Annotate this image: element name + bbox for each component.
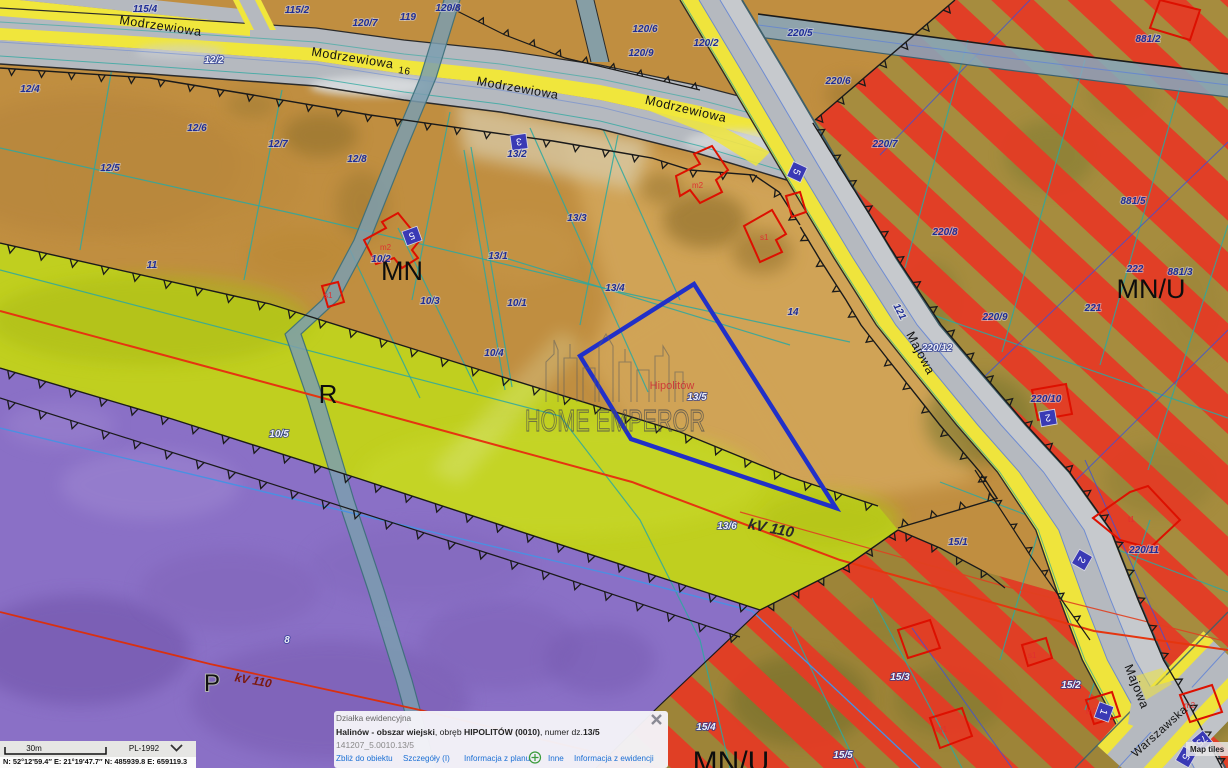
svg-text:115/2: 115/2 — [285, 5, 310, 16]
svg-text:141207_5.0010.13/5: 141207_5.0010.13/5 — [336, 740, 414, 750]
svg-text:220/11: 220/11 — [1128, 545, 1159, 556]
svg-text:10/1: 10/1 — [507, 298, 527, 309]
svg-text:220/6: 220/6 — [824, 76, 850, 87]
svg-text:s1: s1 — [1028, 651, 1037, 660]
svg-text:10/3: 10/3 — [420, 296, 440, 307]
svg-text:30m: 30m — [26, 744, 42, 753]
svg-text:m2: m2 — [380, 243, 392, 252]
svg-text:10/4: 10/4 — [484, 348, 504, 359]
svg-text:15/1: 15/1 — [948, 537, 968, 548]
svg-text:221: 221 — [1084, 303, 1102, 314]
svg-text:881/2: 881/2 — [1135, 34, 1160, 45]
svg-text:N: 52°12'59.4″ E: 21°19'47.7″: N: 52°12'59.4″ E: 21°19'47.7″ N: 485939.… — [3, 757, 187, 766]
svg-text:220/10: 220/10 — [1030, 394, 1062, 405]
svg-text:15/3: 15/3 — [890, 672, 910, 683]
svg-text:120/6: 120/6 — [632, 24, 657, 35]
svg-text:13/3: 13/3 — [567, 213, 587, 224]
svg-text:220/8: 220/8 — [931, 227, 957, 238]
svg-text:13/2: 13/2 — [507, 149, 527, 160]
svg-text:13/5: 13/5 — [687, 392, 707, 403]
svg-text:15/5: 15/5 — [833, 750, 853, 761]
svg-text:Map tiles: Map tiles — [1190, 745, 1225, 754]
svg-text:HOME EMPEROR: HOME EMPEROR — [525, 403, 705, 438]
svg-text:120/9: 120/9 — [628, 48, 653, 59]
svg-text:Informacja z planu: Informacja z planu — [464, 754, 530, 763]
svg-text:Działka ewidencyjna: Działka ewidencyjna — [336, 713, 412, 723]
svg-text:13/4: 13/4 — [605, 283, 625, 294]
svg-text:13/1: 13/1 — [488, 251, 508, 262]
svg-text:14: 14 — [787, 307, 799, 318]
svg-text:P: P — [204, 670, 220, 697]
svg-text:13/6: 13/6 — [717, 521, 737, 532]
svg-text:PL-1992: PL-1992 — [129, 744, 160, 753]
svg-text:15/2: 15/2 — [1061, 680, 1081, 691]
svg-text:Hipolitów: Hipolitów — [650, 380, 695, 392]
svg-text:119: 119 — [400, 12, 416, 23]
svg-text:Inne: Inne — [548, 754, 564, 763]
svg-text:12/2: 12/2 — [204, 55, 224, 66]
svg-text:m1: m1 — [936, 725, 948, 734]
svg-text:120/8: 120/8 — [435, 3, 460, 14]
svg-text:12/5: 12/5 — [100, 163, 120, 174]
svg-text:12/8: 12/8 — [347, 154, 367, 165]
svg-text:120/2: 120/2 — [693, 38, 718, 49]
svg-text:220/9: 220/9 — [981, 312, 1007, 323]
svg-text:8: 8 — [284, 635, 290, 646]
svg-text:R: R — [319, 379, 338, 409]
svg-text:11: 11 — [147, 260, 158, 271]
svg-text:120/7: 120/7 — [352, 18, 377, 29]
svg-text:MN/U: MN/U — [693, 746, 770, 768]
svg-text:s1: s1 — [760, 233, 769, 242]
svg-text:16: 16 — [397, 65, 411, 78]
svg-text:881/5: 881/5 — [1120, 196, 1145, 207]
svg-text:Halinów - obszar wiejski, obrę: Halinów - obszar wiejski, obręb HIPOLITÓ… — [336, 726, 600, 737]
svg-text:Szczegóły (I): Szczegóły (I) — [403, 754, 450, 763]
svg-text:15/4: 15/4 — [696, 722, 716, 733]
svg-text:MN: MN — [381, 256, 423, 286]
svg-text:12/7: 12/7 — [268, 139, 288, 150]
svg-text:m2: m2 — [692, 181, 704, 190]
svg-text:Zbliż do obiektu: Zbliż do obiektu — [336, 754, 393, 763]
svg-text:12/4: 12/4 — [20, 84, 40, 95]
svg-text:10/5: 10/5 — [269, 429, 289, 440]
svg-text:12/6: 12/6 — [187, 123, 207, 134]
svg-text:MN/U: MN/U — [1117, 274, 1186, 304]
svg-text:220/12: 220/12 — [921, 343, 953, 354]
svg-text:220/5: 220/5 — [786, 28, 812, 39]
svg-text:220/7: 220/7 — [871, 139, 897, 150]
svg-text:Informacja z ewidencji: Informacja z ewidencji — [574, 754, 654, 763]
svg-text:t1: t1 — [1128, 515, 1135, 524]
svg-text:s1: s1 — [324, 291, 333, 300]
svg-text:115/4: 115/4 — [133, 4, 158, 15]
